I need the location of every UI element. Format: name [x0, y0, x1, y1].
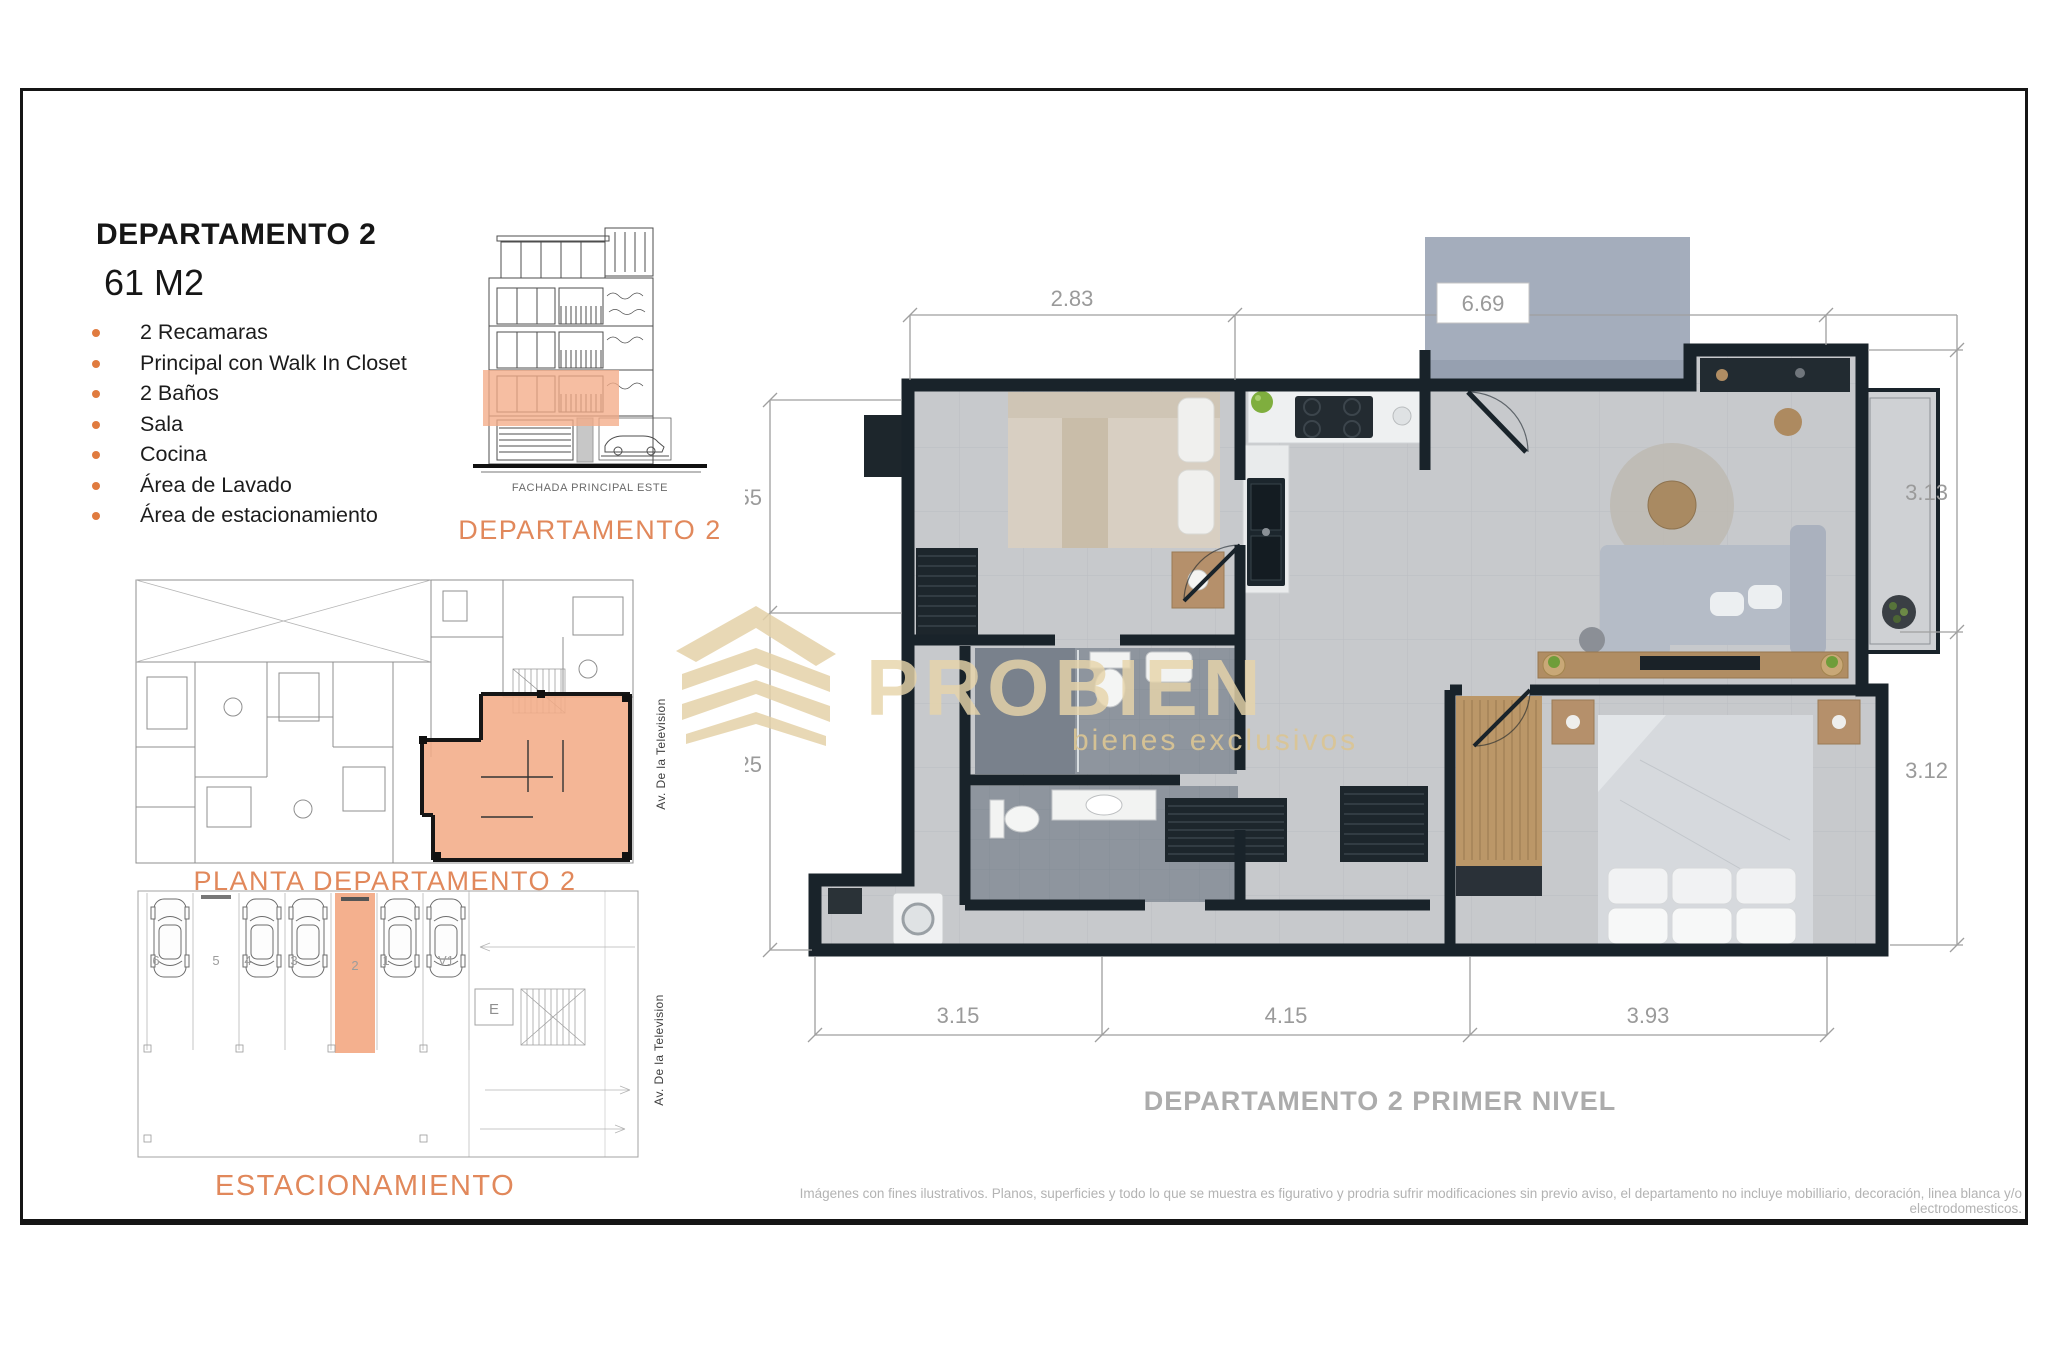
floor-plate-drawing [133, 577, 636, 866]
dim-right-upper: 3.13 [1905, 480, 1948, 505]
stall-label-v1: V1 [438, 953, 454, 968]
feature-list: 2 Recamaras Principal con Walk In Closet… [92, 320, 407, 534]
feature-item: Área de estacionamiento [92, 503, 407, 534]
feature-item: Sala [92, 412, 407, 443]
watermark-tagline: bienes exclusivos [1072, 724, 1358, 758]
feature-text: Sala [140, 412, 183, 437]
bullet-icon [92, 329, 100, 337]
balcony [1862, 390, 1938, 652]
feature-text: Principal con Walk In Closet [140, 351, 407, 376]
stall-label-4: 4 [244, 953, 251, 968]
stall-label-2: 2 [351, 958, 358, 973]
page-title: DEPARTAMENTO 2 [96, 218, 376, 252]
feature-item: 2 Baños [92, 381, 407, 412]
facade-drawing-label: FACHADA PRINCIPAL ESTE [455, 482, 725, 494]
dim-bottom-left: 3.15 [937, 1003, 980, 1028]
bullet-icon [92, 482, 100, 490]
facade-caption: DEPARTAMENTO 2 [445, 515, 735, 546]
feature-text: Área de Lavado [140, 473, 292, 498]
main-plan-caption: DEPARTAMENTO 2 PRIMER NIVEL [1130, 1086, 1630, 1117]
bullet-icon [92, 421, 100, 429]
feature-item: Principal con Walk In Closet [92, 351, 407, 382]
facade-elevation-drawing [455, 220, 725, 482]
feature-item: 2 Recamaras [92, 320, 407, 351]
parking-drawing: 6 5 4 3 2 1 V1 E [135, 885, 647, 1166]
elevator-label: E [489, 1001, 499, 1018]
dim-right-lower: 3.12 [1905, 758, 1948, 783]
disclaimer-text: Imágenes con fines ilustrativos. Planos,… [702, 1186, 2022, 1216]
bullet-icon [92, 360, 100, 368]
facade-highlight-level [483, 370, 619, 426]
dim-top-right: 6.69 [1462, 291, 1505, 316]
bullet-icon [92, 512, 100, 520]
dim-bottom-mid: 4.15 [1265, 1003, 1308, 1028]
dim-bottom-right: 3.93 [1627, 1003, 1670, 1028]
parking-highlight-stall-2 [335, 893, 375, 1053]
feature-text: Área de estacionamiento [140, 503, 378, 528]
feature-item: Área de Lavado [92, 473, 407, 504]
stall-label-6: 6 [152, 953, 159, 968]
bullet-icon [92, 390, 100, 398]
parking-caption: ESTACIONAMIENTO [215, 1170, 515, 1203]
car-icons [151, 899, 465, 977]
street-label-plan: Av. De la Television [654, 692, 670, 816]
feature-text: 2 Baños [140, 381, 219, 406]
street-label-parking: Av. De la Television [652, 988, 668, 1112]
dim-left-lower: 3.25 [745, 752, 762, 777]
stall-label-3: 3 [290, 953, 297, 968]
watermark-brand: PROBIEN [866, 642, 1266, 734]
wardrobe [916, 548, 978, 636]
stall-label-1: 1 [382, 953, 389, 968]
probien-logo-icon [672, 596, 842, 746]
feature-item: Cocina [92, 442, 407, 473]
brochure-sheet: DEPARTAMENTO 2 61 M2 2 Recamaras Princip… [0, 0, 2048, 1365]
plant-icon [1251, 391, 1273, 413]
bullet-icon [92, 451, 100, 459]
feature-text: Cocina [140, 442, 207, 467]
dim-top-left: 2.83 [1051, 286, 1094, 311]
feature-text: 2 Recamaras [140, 320, 268, 345]
area-subtitle: 61 M2 [104, 262, 204, 304]
stall-label-5: 5 [212, 953, 219, 968]
dim-left-upper: 2.55 [745, 485, 762, 510]
